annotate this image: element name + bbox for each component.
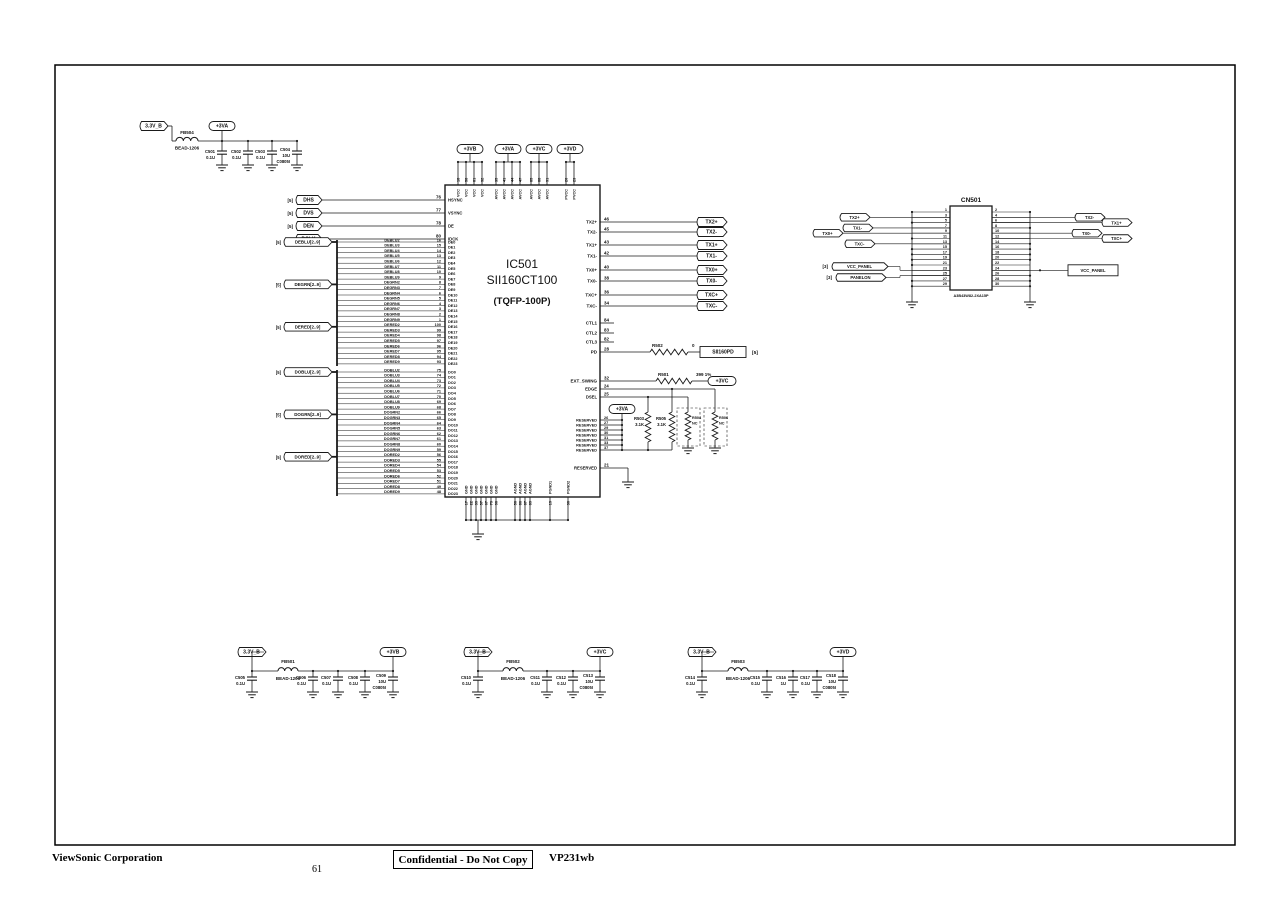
label: C515 bbox=[750, 675, 761, 680]
ferrite-bead-symbol bbox=[278, 668, 298, 671]
net-flag-label: DOGRN[2..9] bbox=[294, 412, 321, 417]
bottom-power-filter-2: 3.3V_BFB502BEAD-1206C5100.1UC5110.1UC512… bbox=[461, 648, 613, 698]
label: 0.1U bbox=[557, 681, 566, 686]
pin-number: 23 bbox=[943, 266, 947, 270]
pin-name: AVCC bbox=[530, 189, 534, 200]
net-flag-label: TX0- bbox=[1082, 231, 1092, 236]
pin-number: 1 bbox=[945, 208, 947, 212]
power-flag-label: +3VB bbox=[464, 147, 477, 153]
pin-name: DE5 bbox=[448, 267, 455, 271]
pin-name: AGND bbox=[519, 483, 523, 494]
pin-number: 5 bbox=[945, 219, 947, 223]
resistor-ref: R506 bbox=[719, 416, 728, 420]
pin-name: DO3 bbox=[448, 386, 456, 390]
pin-name: DO1 bbox=[448, 376, 456, 380]
pin-name: DE22 bbox=[448, 357, 458, 361]
pin-number: 36 bbox=[604, 290, 610, 295]
junction-dot bbox=[1029, 227, 1031, 229]
bit-label: DEGRN3 bbox=[384, 286, 400, 290]
footer-page-number: 61 bbox=[312, 864, 322, 875]
bit-label: DEGRN6 bbox=[384, 302, 400, 306]
label: 10U bbox=[585, 679, 593, 684]
bead-ref: FB502 bbox=[506, 659, 520, 664]
pin-number: 50 bbox=[514, 501, 518, 505]
junction-dot bbox=[1029, 275, 1031, 277]
bit-label: DERED8 bbox=[384, 355, 399, 359]
bit-label: DERED2 bbox=[384, 323, 399, 327]
pin-number: 44 bbox=[511, 177, 515, 182]
net-flag-label: DEN bbox=[303, 224, 314, 230]
pin-number: 2 bbox=[439, 313, 441, 317]
pin-number: 20 bbox=[995, 256, 999, 260]
label: C503 bbox=[255, 149, 266, 154]
junction-dot bbox=[1029, 253, 1031, 255]
pin-name: VCC bbox=[481, 189, 485, 197]
pin-number: 43 bbox=[604, 240, 610, 245]
pin-number: 16 bbox=[437, 238, 441, 242]
label: 0.1U bbox=[531, 681, 540, 686]
pin-name: DO12 bbox=[448, 434, 458, 438]
junction-dot bbox=[911, 264, 913, 266]
sheet-ref: [3] bbox=[827, 275, 833, 280]
bit-label: DOGRN4 bbox=[384, 421, 401, 425]
pin-number: 66 bbox=[437, 411, 441, 415]
pin-number: 12 bbox=[437, 260, 441, 264]
label: 0.1U bbox=[751, 681, 760, 686]
pin-name: RESERVED bbox=[576, 434, 597, 438]
pin-name: AVCC bbox=[519, 189, 523, 200]
net-flag-label: TXC+ bbox=[1111, 236, 1122, 241]
power-flag-label: +3VA bbox=[502, 147, 515, 153]
junction-dot bbox=[1029, 248, 1031, 250]
pin-number: 39 bbox=[475, 501, 479, 505]
nc-outline bbox=[677, 408, 700, 446]
resistor-symbol bbox=[645, 412, 651, 442]
pin-number: 26 bbox=[995, 272, 999, 276]
resistor-symbol bbox=[685, 412, 691, 440]
sheet-ref: [5] bbox=[276, 370, 282, 375]
pin-number: 92 bbox=[481, 178, 485, 182]
pin-number: 21 bbox=[604, 463, 610, 468]
bit-label: DEGRN4 bbox=[384, 291, 401, 295]
pin-number: 67 bbox=[485, 501, 489, 505]
pin-number: 12 bbox=[995, 235, 999, 239]
pin-name: DO10 bbox=[448, 423, 458, 427]
pin-name: DSEL bbox=[586, 395, 598, 400]
pin-number: 28 bbox=[995, 277, 999, 281]
pin-name: PGND2 bbox=[567, 481, 571, 494]
bead-part: BEAD-1206 bbox=[501, 676, 526, 681]
bit-label: DEBLU6 bbox=[384, 260, 399, 264]
pin-name: DE bbox=[448, 224, 454, 229]
pin-name: DO4 bbox=[448, 392, 457, 396]
bit-label: DOGRN2 bbox=[384, 411, 400, 415]
pin-number: 88 bbox=[538, 178, 542, 182]
bit-label: DORED4 bbox=[384, 464, 401, 468]
label: C512 bbox=[556, 675, 567, 680]
power-flag-label: +3VC bbox=[594, 650, 607, 656]
ic-power-pins: +3VB18VCC58VCC81VCC92VCC+3VA35AVCC41AVCC… bbox=[457, 145, 583, 200]
bit-label: DERED6 bbox=[384, 344, 399, 348]
pin-number: 51 bbox=[437, 480, 441, 484]
pin-number: 22 bbox=[470, 501, 474, 505]
resistor-symbol bbox=[712, 412, 718, 440]
pin-number: 97 bbox=[437, 339, 441, 343]
pin-number: 79 bbox=[490, 501, 494, 505]
pin-name: RESERVED bbox=[576, 444, 597, 448]
ferrite-bead-symbol bbox=[503, 668, 523, 671]
pin-number: 30 bbox=[995, 282, 999, 286]
label: C0805I bbox=[276, 159, 290, 164]
pin-number: 15 bbox=[437, 244, 441, 248]
pin-name: PVCC bbox=[565, 189, 569, 200]
bit-label: DORED7 bbox=[384, 480, 400, 484]
pin-name: DE15 bbox=[448, 320, 458, 324]
junction-dot bbox=[1029, 285, 1031, 287]
junction-dot bbox=[911, 222, 913, 224]
footer-company: ViewSonic Corporation bbox=[52, 852, 163, 864]
pin-name: DO21 bbox=[448, 482, 458, 486]
pin-name: AVCC bbox=[538, 189, 542, 200]
bit-label: DEBLU2 bbox=[384, 238, 399, 242]
junction-dot bbox=[911, 248, 913, 250]
net-flag-label: 3.3V_B bbox=[145, 124, 162, 130]
bit-label: DOBLU7 bbox=[384, 395, 400, 399]
sheet-border bbox=[55, 65, 1235, 845]
sheet-ref: [5] bbox=[276, 282, 282, 287]
pin-number: 4 bbox=[439, 302, 442, 306]
pin-name: DO17 bbox=[448, 460, 458, 464]
tx-outputs: TX2+46TX2+TX2-45TX2-TX1+43TX1+TX1-42TX1-… bbox=[585, 217, 727, 311]
pin-name: DO7 bbox=[448, 407, 456, 411]
pin-name: DE16 bbox=[448, 325, 458, 329]
sheet-ref: [5] bbox=[276, 325, 282, 330]
pin-number: 24 bbox=[995, 266, 1000, 270]
pin-number: 33 bbox=[604, 441, 608, 445]
pin-name: EDGE bbox=[585, 387, 597, 392]
pin-number: 14 bbox=[437, 249, 442, 253]
junction-dot bbox=[1029, 211, 1031, 213]
pin-name: DO8 bbox=[448, 413, 456, 417]
pin-name: RESERVED bbox=[576, 424, 597, 428]
pin-number: 32 bbox=[604, 376, 610, 381]
label: 0.1U bbox=[236, 681, 245, 686]
pin-number: 11 bbox=[437, 265, 441, 269]
pin-number: 9 bbox=[439, 275, 441, 279]
pin-number: 4 bbox=[995, 213, 998, 217]
net-flag-label: TX1- bbox=[853, 226, 863, 231]
pin-name: DO5 bbox=[448, 397, 456, 401]
label: C511 bbox=[530, 675, 540, 680]
label: 0.1U bbox=[801, 681, 810, 686]
pin-number: 27 bbox=[604, 421, 608, 425]
junction-dot bbox=[1029, 280, 1031, 282]
pin-name: DE1 bbox=[448, 246, 455, 250]
pin-number: 17 bbox=[465, 501, 469, 505]
junction-dot bbox=[911, 237, 913, 239]
pin-name: VCC bbox=[457, 189, 461, 197]
label: 1U bbox=[781, 681, 786, 686]
resistor-value: NC bbox=[719, 422, 725, 426]
pin-name: PGND1 bbox=[549, 481, 553, 494]
pin-number: 60 bbox=[437, 443, 441, 447]
bit-label: DORED3 bbox=[384, 458, 400, 462]
junction-dot bbox=[621, 449, 623, 451]
bit-label: DEBLU5 bbox=[384, 254, 399, 258]
pin-name: DO23 bbox=[448, 492, 458, 496]
ferrite-bead-symbol bbox=[728, 668, 748, 671]
label: C510 bbox=[461, 675, 472, 680]
resistor-symbol bbox=[669, 412, 675, 442]
bit-label: DORED8 bbox=[384, 485, 400, 489]
junction-dot bbox=[1039, 269, 1041, 271]
bit-label: DERED7 bbox=[384, 350, 399, 354]
resistor-ref: R505 bbox=[656, 416, 667, 421]
pin-name: PVCC bbox=[573, 189, 577, 200]
pin-number: 46 bbox=[604, 217, 610, 222]
pin-number: 58 bbox=[465, 178, 469, 182]
net-flag-label: DORED[2..9] bbox=[294, 455, 321, 460]
bit-label: DOBLU6 bbox=[384, 390, 400, 394]
bit-label: DERED3 bbox=[384, 328, 399, 332]
pin-name: DE19 bbox=[448, 341, 458, 345]
label: C508 bbox=[348, 675, 359, 680]
pin-name: TX1- bbox=[587, 254, 597, 259]
resistor-ref: R502 bbox=[652, 343, 663, 348]
pin-name: DO15 bbox=[448, 450, 458, 454]
junction-dot bbox=[911, 211, 913, 213]
label: C518 bbox=[826, 673, 837, 678]
pin-number: 69 bbox=[437, 400, 441, 404]
connector-body bbox=[950, 206, 992, 290]
pin-number: 83 bbox=[604, 328, 610, 333]
bit-label: DOBLU4 bbox=[384, 379, 400, 383]
pin-number: 89 bbox=[529, 501, 533, 505]
pin-number: 56 bbox=[437, 453, 441, 457]
pin-name: HSYNC bbox=[448, 198, 463, 203]
pin-number: 48 bbox=[437, 490, 441, 494]
pin-number: 1 bbox=[439, 318, 441, 322]
junction-dot bbox=[911, 259, 913, 261]
label: C506 bbox=[296, 675, 307, 680]
pin-name: DO14 bbox=[448, 445, 459, 449]
pin-number: 17 bbox=[943, 250, 947, 254]
pin-name: GND bbox=[490, 485, 494, 494]
pin-number: 71 bbox=[437, 390, 441, 394]
nc-outline bbox=[704, 408, 727, 446]
net-flag-label: TXC- bbox=[706, 304, 718, 310]
bit-label: DEBLU8 bbox=[384, 270, 399, 274]
label: C0805I bbox=[579, 685, 593, 690]
net-flag-label: DEGRN[2..9] bbox=[294, 282, 321, 287]
pin-number: 21 bbox=[943, 261, 947, 265]
label: 10U bbox=[282, 153, 290, 158]
connector-part-number: A3B43W82-2XA15P bbox=[953, 294, 988, 298]
pin-number: 10 bbox=[995, 229, 999, 233]
bit-label: DOGRN7 bbox=[384, 437, 400, 441]
net-flag-label: DERED[2..9] bbox=[295, 325, 321, 330]
pin-number: 7 bbox=[945, 224, 947, 228]
pin-number: 18 bbox=[995, 250, 999, 254]
resistor-symbol bbox=[656, 378, 692, 384]
label: C507 bbox=[321, 675, 332, 680]
pin-name: DO16 bbox=[448, 455, 458, 459]
resistor-ref: R503 bbox=[634, 416, 645, 421]
pin-name: TX0+ bbox=[586, 268, 597, 273]
net-flag-label: TX0+ bbox=[705, 268, 717, 274]
junction-dot bbox=[911, 280, 913, 282]
pin-name: TX2+ bbox=[586, 220, 597, 225]
input-bus: [5]DEBLU[2..9][5]DEGRN[2..9][5]DERED[2..… bbox=[276, 238, 459, 367]
net-flag-label: TX1+ bbox=[705, 243, 717, 249]
pin-name: DE4 bbox=[448, 262, 456, 266]
pin-number: 7 bbox=[439, 286, 441, 290]
pin-name: GND bbox=[485, 485, 489, 494]
bit-label: DOBLU8 bbox=[384, 400, 400, 404]
label: C513 bbox=[583, 673, 594, 678]
bit-label: DORED5 bbox=[384, 469, 400, 473]
net-flag-label: DVS bbox=[303, 211, 314, 217]
pin-name: VCC bbox=[465, 189, 469, 197]
sheet-ref: [5] bbox=[276, 455, 282, 460]
pin-name: AGND bbox=[524, 483, 528, 494]
bead-ref: FB501 bbox=[281, 659, 295, 664]
resistor-value: 0 bbox=[692, 343, 695, 348]
pin-number: 16 bbox=[995, 245, 999, 249]
pin-number: 11 bbox=[943, 235, 947, 239]
pin-number: 30 bbox=[604, 431, 608, 435]
bit-label: DEGRN5 bbox=[384, 297, 400, 301]
connector-cn501: CN501A3B43W82-2XA15P13579111315171921232… bbox=[813, 197, 1132, 308]
pin-number: 62 bbox=[437, 432, 441, 436]
label: 0.1U bbox=[232, 155, 241, 160]
pin-name: DE14 bbox=[448, 315, 458, 319]
pin-number: 78 bbox=[436, 221, 442, 226]
sheet-ref: [5] bbox=[752, 350, 758, 356]
pin-name: AVCC bbox=[546, 189, 550, 200]
pin-number: 70 bbox=[437, 395, 441, 399]
bead-ref: FB503 bbox=[731, 659, 745, 664]
pin-name: GND bbox=[470, 485, 474, 494]
pin-number: 96 bbox=[437, 344, 441, 348]
reserved-single: RESERVED21 bbox=[574, 463, 634, 488]
junction-dot bbox=[911, 253, 913, 255]
bit-label: DOBLU5 bbox=[384, 384, 400, 388]
label: FB504 bbox=[180, 130, 194, 135]
sheet-ref: [5] bbox=[288, 224, 294, 229]
control-inputs: [5]DHS76HSYNC[5]DVS77VSYNC[5]DEN78DE[5]D… bbox=[288, 195, 463, 244]
resistor-value: 399 1% bbox=[696, 372, 711, 377]
bit-label: DOGRN9 bbox=[384, 448, 400, 452]
label: C0805I bbox=[372, 685, 386, 690]
power-flag-label: +3VB bbox=[387, 650, 400, 656]
pin-number: 6 bbox=[439, 291, 441, 295]
resistor-value: NC bbox=[692, 422, 698, 426]
pin-number: 5 bbox=[439, 297, 441, 301]
pin-name: PD bbox=[591, 350, 598, 355]
label: C501 bbox=[205, 149, 216, 154]
label: 0.1U bbox=[462, 681, 471, 686]
label: 10U bbox=[828, 679, 836, 684]
pin-number: 34 bbox=[604, 301, 610, 306]
pin-number: 8 bbox=[995, 224, 997, 228]
pin-name: DO13 bbox=[448, 439, 458, 443]
pin-number: 100 bbox=[435, 323, 441, 327]
junction-dot bbox=[1029, 243, 1031, 245]
bit-label: DERED9 bbox=[384, 360, 399, 364]
resistor-value: 3.1K bbox=[635, 422, 644, 427]
pin-number: 47 bbox=[519, 178, 523, 182]
pin-number: 24 bbox=[604, 384, 609, 389]
pin-number: 18 bbox=[457, 178, 461, 182]
pin-name: DO0 bbox=[448, 370, 456, 374]
net-flag-label: DHS bbox=[303, 198, 314, 204]
net-flag-label: TX2+ bbox=[849, 215, 860, 220]
resistor-ref: R501 bbox=[658, 372, 669, 377]
pin-name: DE11 bbox=[448, 299, 457, 303]
label: C504 bbox=[280, 147, 291, 152]
pin-name: RESERVED bbox=[576, 449, 597, 453]
pin-number: 53 bbox=[437, 469, 441, 473]
pin-number: 19 bbox=[549, 501, 553, 505]
pin-number: 65 bbox=[437, 416, 441, 420]
pin-number: 59 bbox=[437, 448, 441, 452]
pin-name: DE8 bbox=[448, 283, 455, 287]
bit-label: DOBLU9 bbox=[384, 405, 400, 409]
pin-number: 30 bbox=[567, 501, 571, 505]
pin-name: DE18 bbox=[448, 336, 458, 340]
connector-ref: CN501 bbox=[961, 197, 982, 204]
pin-name: CTL1 bbox=[586, 321, 598, 326]
label: 0.1U bbox=[297, 681, 306, 686]
net-flag-label: TXC- bbox=[855, 242, 865, 247]
label: C516 bbox=[776, 675, 787, 680]
pin-number: 54 bbox=[437, 464, 442, 468]
pin-name: GND bbox=[480, 485, 484, 494]
pin-number: 55 bbox=[437, 458, 441, 462]
bit-label: DOBLU2 bbox=[384, 368, 400, 372]
pin-name: DO19 bbox=[448, 471, 458, 475]
bit-label: DOGRN8 bbox=[384, 443, 400, 447]
label: 10U bbox=[378, 679, 386, 684]
pin-number: 91 bbox=[546, 178, 550, 182]
pin-name: CTL2 bbox=[586, 331, 598, 336]
bit-label: DORED9 bbox=[384, 490, 400, 494]
ic-ref: IC501 bbox=[506, 257, 538, 271]
pin-name: AGND bbox=[529, 483, 533, 494]
pin-name: DE12 bbox=[448, 304, 458, 308]
pin-number: 81 bbox=[473, 178, 477, 182]
pin-number: 22 bbox=[995, 261, 999, 265]
pin-name: RESERVED bbox=[576, 429, 597, 433]
pin-name: DE10 bbox=[448, 293, 458, 297]
pin-number: 37 bbox=[604, 446, 608, 450]
pin-number: 86 bbox=[519, 501, 523, 505]
label: 0.1U bbox=[256, 155, 265, 160]
pin-number: 26 bbox=[604, 416, 608, 420]
pin-name: VCC bbox=[473, 189, 477, 197]
sheet-ref: [5] bbox=[288, 198, 294, 203]
pin-number: 35 bbox=[495, 178, 499, 182]
output-bus: [5]DOBLU[2..9][5]DOGRN[2..9][5]DORED[2..… bbox=[276, 368, 459, 497]
power-flag-label: +3VC bbox=[533, 147, 546, 153]
pin-name: DE2 bbox=[448, 251, 455, 255]
pin-number: 73 bbox=[437, 379, 441, 383]
net-flag-label: DEBLU[2..9] bbox=[295, 240, 321, 245]
pin-name: GND bbox=[465, 485, 469, 494]
pin-name: TX1+ bbox=[586, 243, 597, 248]
resistor-symbol bbox=[650, 349, 688, 355]
